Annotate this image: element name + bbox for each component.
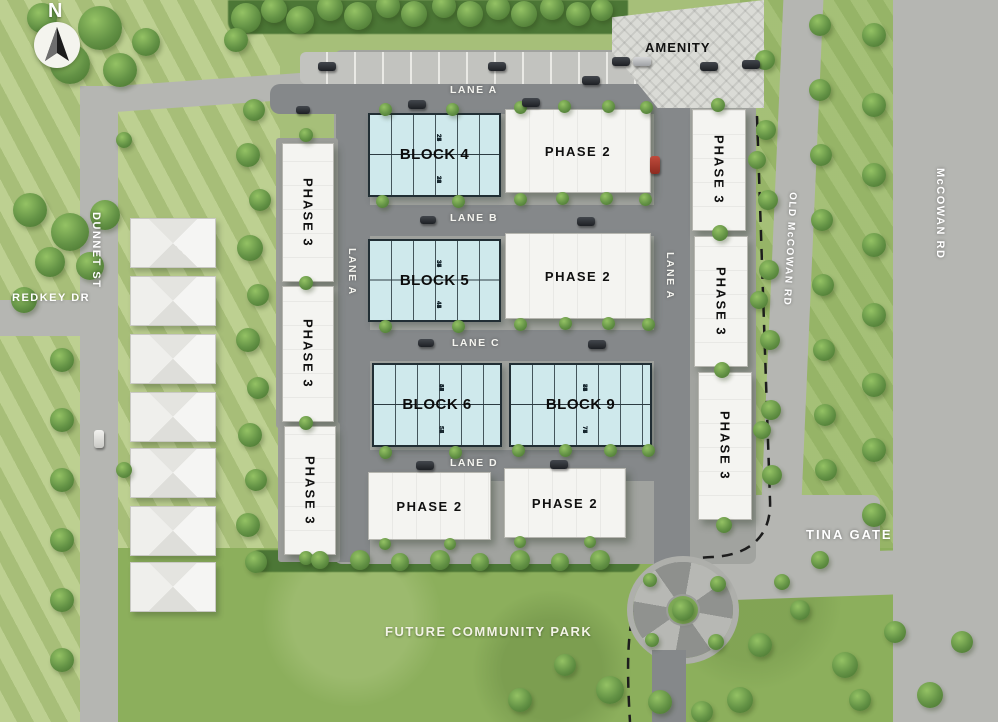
amenity-label: AMENITY bbox=[645, 40, 711, 55]
tree-icon bbox=[600, 192, 613, 205]
tree-icon bbox=[748, 633, 772, 657]
tree-icon bbox=[758, 190, 778, 210]
tree-icon bbox=[50, 648, 74, 672]
tree-icon bbox=[236, 328, 260, 352]
tree-icon bbox=[691, 701, 713, 722]
tree-icon bbox=[236, 513, 260, 537]
tree-icon bbox=[759, 260, 779, 280]
tree-icon bbox=[514, 318, 527, 331]
phase2-building-northeast: PHASE 2 bbox=[505, 109, 651, 193]
unit-number: 40 bbox=[435, 301, 442, 308]
compass-icon bbox=[34, 22, 80, 68]
tree-icon bbox=[811, 551, 829, 569]
tree-icon bbox=[809, 14, 831, 36]
tree-icon bbox=[50, 348, 74, 372]
block-5-building: 343536373839 BLOCK 5 454443424140 bbox=[368, 239, 501, 322]
car-icon bbox=[588, 340, 606, 349]
tree-icon bbox=[379, 320, 392, 333]
block-5-label: BLOCK 5 bbox=[370, 272, 499, 289]
tree-icon bbox=[116, 462, 132, 478]
car-icon bbox=[742, 60, 760, 69]
phase2-label: PHASE 2 bbox=[545, 144, 611, 159]
house-roof-icon bbox=[130, 392, 216, 442]
tree-icon bbox=[78, 6, 122, 50]
tree-icon bbox=[391, 553, 409, 571]
block-4-building: 222324252627 BLOCK 4 333231302928 bbox=[368, 113, 501, 197]
tree-icon bbox=[862, 503, 886, 527]
lane-b-road bbox=[340, 205, 690, 236]
tree-icon bbox=[643, 573, 657, 587]
tree-icon bbox=[50, 468, 74, 492]
block-6-building: 464748495051 BLOCK 6 575655545352 bbox=[372, 363, 502, 447]
tree-icon bbox=[862, 303, 886, 327]
car-icon bbox=[318, 62, 336, 71]
tree-icon bbox=[672, 599, 694, 621]
tree-icon bbox=[311, 551, 329, 569]
car-icon bbox=[416, 461, 434, 470]
tree-icon bbox=[602, 100, 615, 113]
tree-icon bbox=[750, 291, 768, 309]
tree-icon bbox=[813, 339, 835, 361]
house-roof-icon bbox=[130, 562, 216, 612]
tree-icon bbox=[299, 128, 313, 142]
tree-icon bbox=[862, 163, 886, 187]
car-icon bbox=[408, 100, 426, 109]
tree-icon bbox=[379, 538, 391, 550]
tree-icon bbox=[815, 459, 837, 481]
phase2-label: PHASE 2 bbox=[545, 269, 611, 284]
house-roof-icon bbox=[130, 276, 216, 326]
unit-number: 85 bbox=[581, 384, 588, 391]
tree-icon bbox=[559, 317, 572, 330]
tree-icon bbox=[512, 444, 525, 457]
tree-icon bbox=[457, 1, 483, 27]
car-icon bbox=[577, 217, 595, 226]
lane-c-road bbox=[340, 330, 690, 361]
site-plan-map: AMENITY 222324252627 BLOCK 4 33323130292… bbox=[0, 0, 998, 722]
car-icon bbox=[94, 430, 104, 448]
tree-icon bbox=[727, 687, 753, 713]
tree-icon bbox=[103, 53, 137, 87]
tree-icon bbox=[13, 193, 47, 227]
tree-icon bbox=[376, 195, 389, 208]
unit-numbers-row: 79808182838485 bbox=[514, 371, 647, 397]
phase3-label: PHASE 3 bbox=[718, 411, 733, 481]
tree-icon bbox=[711, 98, 725, 112]
tree-icon bbox=[862, 93, 886, 117]
tree-icon bbox=[714, 362, 730, 378]
house-roof-icon bbox=[130, 334, 216, 384]
tree-icon bbox=[814, 404, 836, 426]
tree-icon bbox=[379, 446, 392, 459]
tina-gate-label: TINA GATE bbox=[806, 527, 893, 542]
tree-icon bbox=[862, 23, 886, 47]
tree-icon bbox=[951, 631, 973, 653]
tree-icon bbox=[884, 621, 906, 643]
tree-icon bbox=[247, 377, 269, 399]
tree-icon bbox=[590, 550, 610, 570]
tree-icon bbox=[350, 550, 370, 570]
car-icon bbox=[550, 460, 568, 469]
house-roof-icon bbox=[130, 448, 216, 498]
tree-icon bbox=[762, 465, 782, 485]
lane-b-label: LANE B bbox=[450, 212, 498, 224]
dunnet-street bbox=[80, 86, 118, 722]
unit-numbers-row: 333231302928 bbox=[373, 163, 496, 189]
tree-icon bbox=[286, 6, 314, 34]
tree-icon bbox=[379, 103, 392, 116]
house-roof-icon bbox=[130, 506, 216, 556]
tree-icon bbox=[849, 689, 871, 711]
tree-icon bbox=[716, 517, 732, 533]
phase2-building-southwest: PHASE 2 bbox=[368, 472, 491, 540]
tree-icon bbox=[566, 2, 590, 26]
tree-icon bbox=[760, 330, 780, 350]
unit-number: 39 bbox=[435, 260, 442, 267]
tree-icon bbox=[862, 233, 886, 257]
lane-a-west-label: LANE A bbox=[346, 248, 358, 296]
tree-icon bbox=[756, 120, 776, 140]
tree-icon bbox=[917, 682, 943, 708]
tree-icon bbox=[236, 143, 260, 167]
phase3-building-east-1: PHASE 3 bbox=[692, 109, 746, 231]
tree-icon bbox=[116, 132, 132, 148]
tree-icon bbox=[639, 193, 652, 206]
phase2-label: PHASE 2 bbox=[532, 496, 598, 511]
tree-icon bbox=[247, 284, 269, 306]
tree-icon bbox=[708, 634, 724, 650]
tree-icon bbox=[790, 600, 810, 620]
tree-icon bbox=[604, 444, 617, 457]
tree-icon bbox=[245, 551, 267, 573]
block-4-label: BLOCK 4 bbox=[370, 146, 499, 163]
tree-icon bbox=[710, 576, 726, 592]
tree-icon bbox=[810, 144, 832, 166]
lane-c-label: LANE C bbox=[452, 337, 500, 349]
unit-number: 27 bbox=[435, 134, 442, 141]
tree-icon bbox=[224, 28, 248, 52]
phase2-building-southeast: PHASE 2 bbox=[504, 468, 626, 538]
mccowan-rd-label: McCOWAN RD bbox=[934, 168, 946, 259]
tree-icon bbox=[299, 416, 313, 430]
car-icon bbox=[700, 62, 718, 71]
car-icon bbox=[488, 62, 506, 71]
tree-icon bbox=[35, 247, 65, 277]
phase3-building-west-2: PHASE 3 bbox=[282, 286, 334, 422]
unit-numbers-row: 464748495051 bbox=[377, 371, 497, 397]
tree-icon bbox=[508, 688, 532, 712]
tree-icon bbox=[430, 550, 450, 570]
tree-icon bbox=[237, 235, 263, 261]
tree-icon bbox=[774, 574, 790, 590]
tree-icon bbox=[862, 373, 886, 397]
tree-icon bbox=[50, 528, 74, 552]
block-9-label: BLOCK 9 bbox=[511, 396, 650, 413]
tree-icon bbox=[446, 103, 459, 116]
block-6-label: BLOCK 6 bbox=[374, 396, 500, 413]
tree-icon bbox=[642, 444, 655, 457]
phase3-label: PHASE 3 bbox=[301, 178, 316, 248]
unit-number: 72 bbox=[581, 426, 588, 433]
tree-icon bbox=[648, 690, 672, 714]
tree-icon bbox=[558, 100, 571, 113]
car-icon bbox=[418, 339, 434, 347]
tree-icon bbox=[551, 553, 569, 571]
tree-icon bbox=[559, 444, 572, 457]
tree-icon bbox=[642, 318, 655, 331]
tree-icon bbox=[243, 99, 265, 121]
car-icon bbox=[612, 57, 630, 66]
tree-icon bbox=[748, 151, 766, 169]
tree-icon bbox=[471, 553, 489, 571]
tree-icon bbox=[299, 276, 313, 290]
unit-number: 51 bbox=[437, 384, 444, 391]
tree-icon bbox=[761, 400, 781, 420]
redkey-dr-label: REDKEY DR bbox=[12, 292, 90, 304]
tree-icon bbox=[514, 536, 526, 548]
unit-numbers-row: 78777675747372 bbox=[514, 413, 647, 439]
tree-icon bbox=[712, 225, 728, 241]
tree-icon bbox=[596, 676, 624, 704]
tree-icon bbox=[591, 0, 613, 21]
phase3-label: PHASE 3 bbox=[714, 267, 729, 337]
car-icon bbox=[582, 76, 600, 85]
tree-icon bbox=[51, 213, 89, 251]
tree-icon bbox=[811, 209, 833, 231]
phase2-building-east: PHASE 2 bbox=[505, 233, 651, 319]
tree-icon bbox=[452, 320, 465, 333]
house-roof-icon bbox=[130, 218, 216, 268]
tree-icon bbox=[249, 189, 271, 211]
tree-icon bbox=[511, 1, 537, 27]
tree-icon bbox=[510, 550, 530, 570]
car-icon bbox=[522, 98, 540, 107]
tree-icon bbox=[812, 274, 834, 296]
unit-numbers-row: 222324252627 bbox=[373, 121, 496, 147]
phase3-building-east-3: PHASE 3 bbox=[698, 372, 752, 520]
phase3-building-east-2: PHASE 3 bbox=[694, 236, 748, 367]
tree-icon bbox=[554, 654, 576, 676]
phase3-building-west-1: PHASE 3 bbox=[282, 143, 334, 282]
unit-numbers-row: 343536373839 bbox=[373, 247, 496, 273]
car-icon bbox=[296, 106, 310, 114]
future-park-label: FUTURE COMMUNITY PARK bbox=[385, 624, 592, 639]
unit-numbers-row: 454443424140 bbox=[373, 288, 496, 314]
tree-icon bbox=[753, 421, 771, 439]
phase3-label: PHASE 3 bbox=[303, 456, 318, 526]
tree-icon bbox=[50, 588, 74, 612]
car-icon bbox=[650, 156, 660, 174]
unit-numbers-row: 575655545352 bbox=[377, 413, 497, 439]
car-icon bbox=[633, 57, 651, 66]
dunnet-st-label: DUNNET ST bbox=[90, 212, 102, 288]
mccowan-road bbox=[893, 0, 998, 722]
tree-icon bbox=[645, 633, 659, 647]
tree-icon bbox=[640, 101, 653, 114]
lane-d-label: LANE D bbox=[450, 457, 498, 469]
tree-icon bbox=[245, 469, 267, 491]
phase3-label: PHASE 3 bbox=[712, 135, 727, 205]
compass-north-label: N bbox=[48, 0, 62, 23]
tree-icon bbox=[832, 652, 858, 678]
tree-icon bbox=[401, 1, 427, 27]
tree-icon bbox=[238, 423, 262, 447]
phase3-building-west-3: PHASE 3 bbox=[284, 426, 336, 555]
lane-a-west-road bbox=[336, 84, 370, 562]
phase2-label: PHASE 2 bbox=[396, 499, 462, 514]
tree-icon bbox=[556, 192, 569, 205]
tree-icon bbox=[809, 79, 831, 101]
tree-icon bbox=[862, 438, 886, 462]
lane-a-top-label: LANE A bbox=[450, 84, 498, 96]
phase3-label: PHASE 3 bbox=[301, 319, 316, 389]
tree-icon bbox=[132, 28, 160, 56]
tree-icon bbox=[602, 317, 615, 330]
tree-icon bbox=[50, 408, 74, 432]
unit-number: 28 bbox=[435, 176, 442, 183]
tree-icon bbox=[452, 195, 465, 208]
lane-a-east-label: LANE A bbox=[664, 252, 676, 300]
tree-icon bbox=[514, 193, 527, 206]
car-icon bbox=[420, 216, 436, 224]
tree-icon bbox=[584, 536, 596, 548]
unit-number: 52 bbox=[437, 426, 444, 433]
tree-icon bbox=[344, 2, 372, 30]
block-9-building: 79808182838485 BLOCK 9 78777675747372 bbox=[509, 363, 652, 447]
tree-icon bbox=[444, 538, 456, 550]
